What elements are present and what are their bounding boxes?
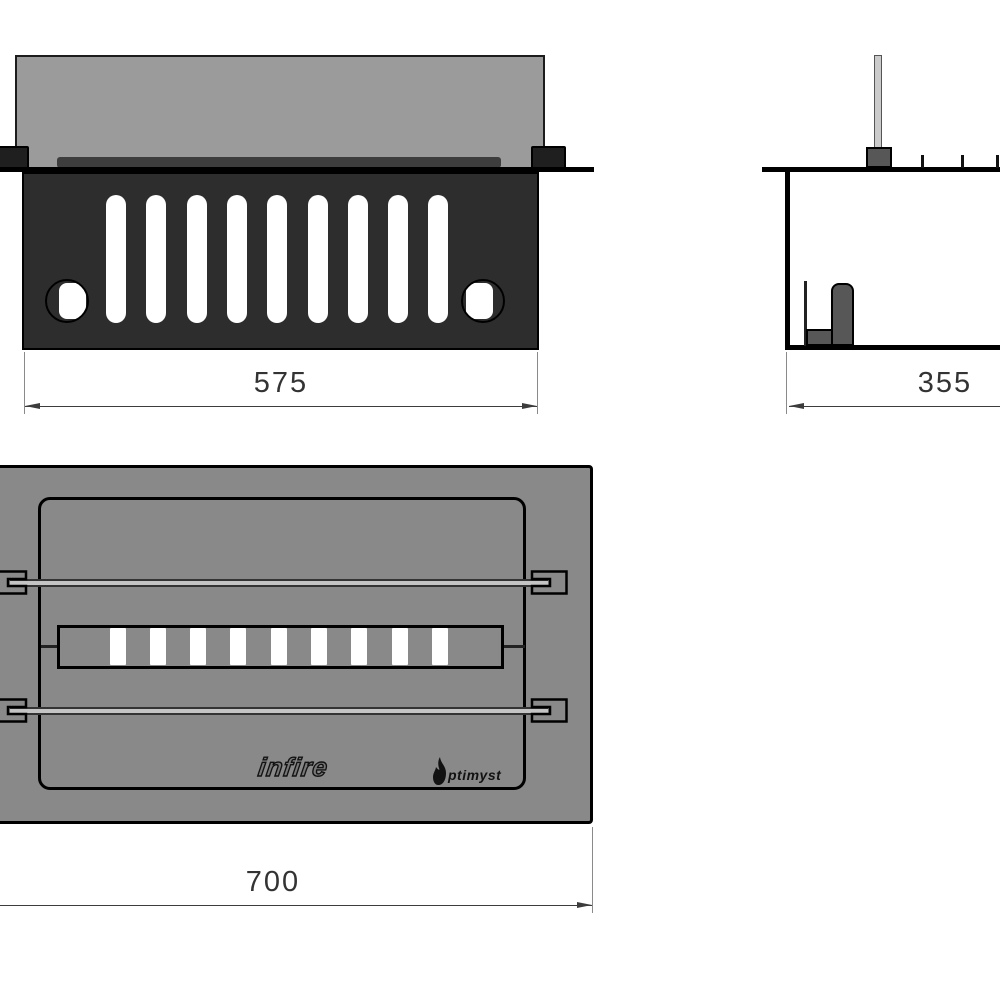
burner-slot — [230, 628, 246, 665]
arrow-right-icon — [577, 902, 592, 908]
infire-logo: infire — [241, 752, 346, 786]
optimyst-logo: ptimyst — [432, 750, 532, 786]
burner-slot — [150, 628, 166, 665]
strip-connector-left — [41, 645, 57, 648]
strip-connector-right — [504, 645, 525, 648]
burner-slot — [190, 628, 206, 665]
burner-slot — [392, 628, 408, 665]
rod-clip-right — [530, 570, 568, 595]
top-view: infire ptimyst 700 — [0, 0, 1000, 1000]
rod-clip-right — [530, 698, 568, 723]
dim-line-700 — [0, 905, 592, 906]
burner-strip — [57, 625, 504, 669]
optimyst-logo-text: ptimyst — [448, 767, 501, 786]
support-rod — [10, 579, 548, 587]
support-rod — [10, 707, 548, 715]
rod-clip-left — [0, 570, 28, 595]
dim-label-700: 700 — [213, 866, 333, 899]
rod-clip-left — [0, 698, 28, 723]
burner-slot — [311, 628, 327, 665]
burner-slot — [110, 628, 126, 665]
burner-slot — [351, 628, 367, 665]
technical-drawing: 575 355 — [0, 0, 1000, 1000]
burner-slot — [432, 628, 448, 665]
burner-slot — [271, 628, 287, 665]
dim-extension-line — [592, 827, 593, 913]
flame-icon — [432, 757, 447, 786]
